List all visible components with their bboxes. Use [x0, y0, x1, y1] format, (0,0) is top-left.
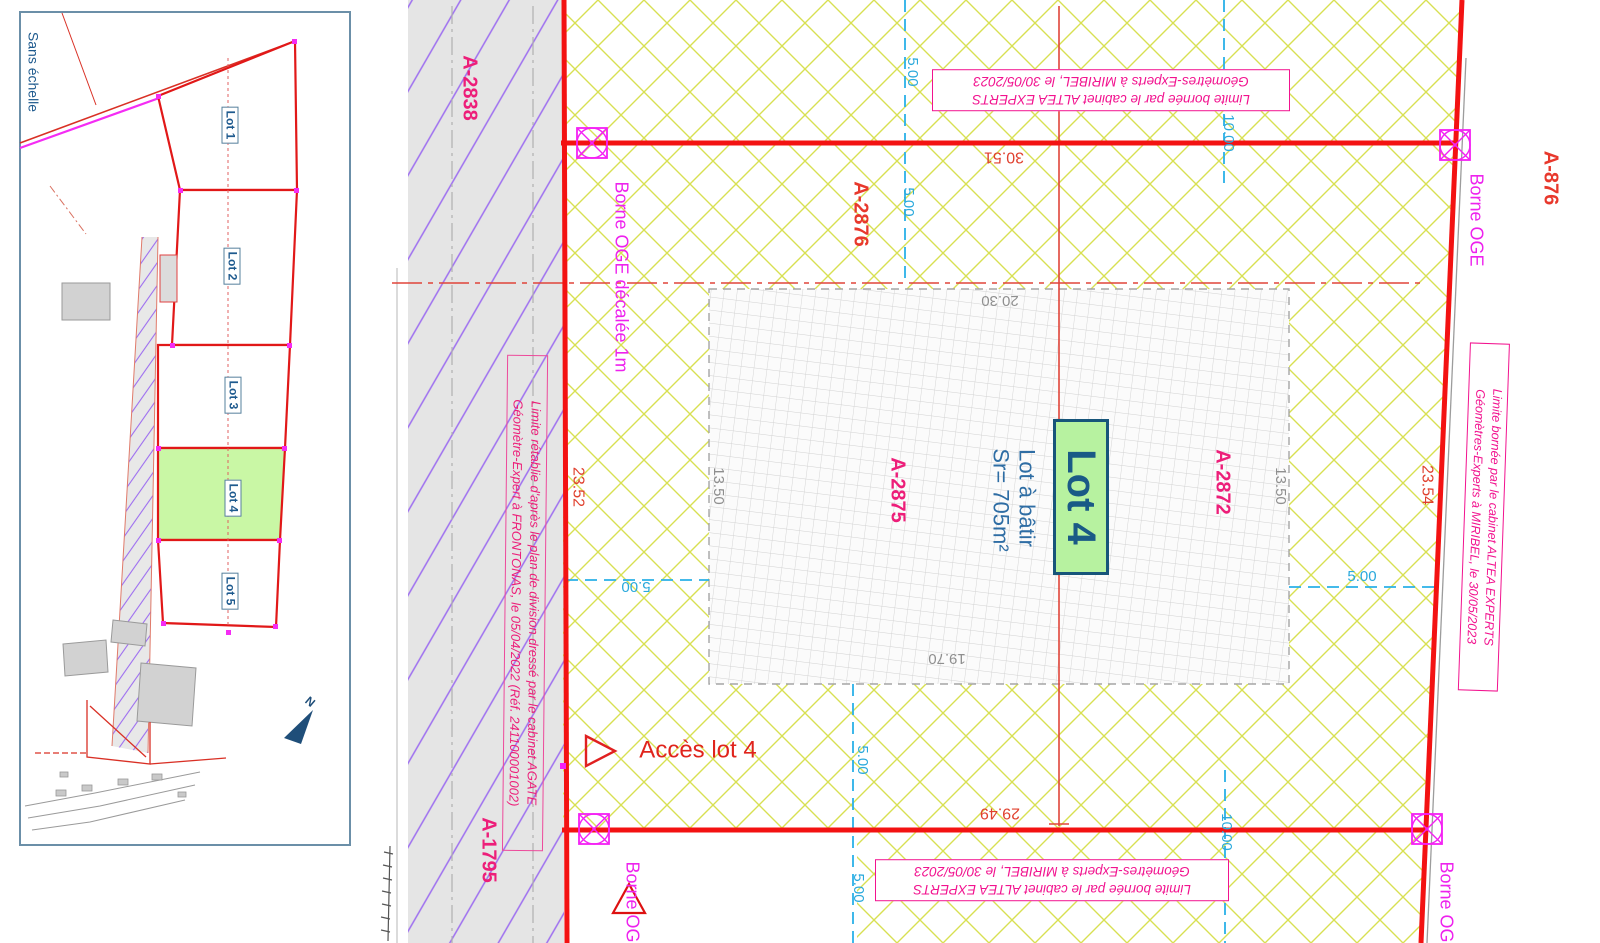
lot4-type: Lot à bâtir	[1015, 449, 1038, 547]
parcel-a2876: A-2876	[850, 181, 871, 247]
dim-top: 30.51	[984, 148, 1024, 165]
lot4-title: Lot 4	[1053, 419, 1109, 575]
inset-lot1-label: Lot 1	[222, 107, 239, 144]
lot4-area: Sr= 705m²	[989, 448, 1012, 551]
inset-lot4-green	[158, 448, 285, 540]
note-line: Géomètres-Experts à MIRIBEL, le 30/05/20…	[884, 862, 1220, 880]
offset-5-bottom-b: 5.00	[850, 873, 866, 902]
inset-scale-note: Sans échelle	[26, 32, 41, 112]
dim-bldg-top: 20.30	[981, 292, 1019, 308]
note-line: Limite bornée par le cabinet ALTEA EXPER…	[941, 90, 1281, 108]
parcel-a2872: A-2872	[1212, 449, 1233, 515]
inset-lot3-label: Lot 3	[225, 377, 242, 414]
inset-lot2-label: Lot 2	[224, 248, 241, 285]
dim-right: 23.54	[1418, 465, 1435, 505]
access-label: Accès lot 4	[639, 737, 756, 762]
inset-lot5-label: Lot 5	[222, 573, 239, 610]
dim-bldg-left: 13.50	[710, 467, 726, 505]
borne-oge-top-right-label: Borne OGE	[1467, 173, 1486, 266]
note-agate-left: Limite rétablie d'après le plan de divis…	[502, 355, 548, 851]
parcel-a1795: A-1795	[478, 817, 499, 883]
inset-map	[20, 12, 350, 845]
offset-5-right: 5.00	[1347, 569, 1376, 585]
boundary-tick	[560, 763, 566, 769]
borne-oge-bottom-right-label: Borne OGE	[1437, 861, 1456, 943]
offset-10-bottom: 10.00	[1218, 813, 1234, 851]
note-line: Limite bornée par le cabinet ALTEA EXPER…	[884, 880, 1220, 898]
dim-bldg-bottom: 19.70	[928, 650, 966, 666]
offset-5-top-b: 5.00	[900, 187, 916, 216]
dim-bottom: 29.49	[980, 804, 1020, 821]
offset-5-top-a: 5.00	[904, 57, 920, 86]
parcel-a2875: A-2875	[887, 457, 908, 523]
plan-graphics	[0, 0, 1600, 943]
cadastral-plan: Sans échelle Lot 1 Lot 2 Lot 3 Lot 4 Lot…	[0, 0, 1600, 943]
borne-oge-bottom-left-label: Borne OGE	[623, 861, 642, 943]
offset-5-left: 5.00	[621, 578, 650, 594]
note-altea-bottom: Limite bornée par le cabinet ALTEA EXPER…	[875, 859, 1229, 901]
fence-symbol	[381, 846, 393, 941]
note-line: Géomètres-Experts à MIRIBEL, le 30/05/20…	[941, 72, 1281, 90]
parcel-a876: A-876	[1540, 151, 1561, 205]
parcel-a2838: A-2838	[459, 55, 480, 121]
borne-oge-offset-label: Borne OGE décalée 1m	[612, 181, 631, 372]
offset-5-bottom-a: 5.00	[854, 745, 870, 774]
offset-10-top: 10.00	[1220, 114, 1236, 152]
dim-left: 23.52	[569, 467, 586, 507]
inset-lot4-label: Lot 4	[225, 480, 242, 517]
note-altea-top: Limite bornée par le cabinet ALTEA EXPER…	[932, 69, 1290, 111]
dim-bldg-right: 13.50	[1272, 467, 1288, 505]
